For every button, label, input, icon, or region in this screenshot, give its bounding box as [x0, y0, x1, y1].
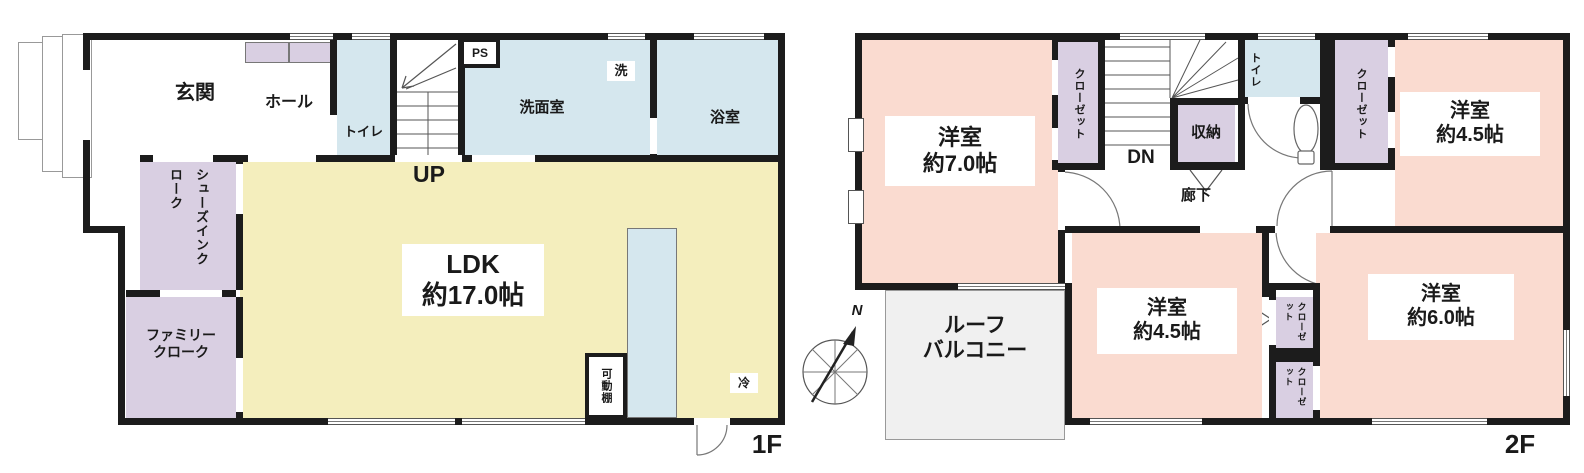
compass-needle-head-icon: [843, 326, 856, 346]
washer-label: 洗: [607, 61, 635, 81]
room45b-label-line1: 洋室: [1147, 297, 1187, 321]
wall-segment-30: [1238, 33, 1245, 170]
wall-segment-9: [390, 40, 397, 158]
north-label: N: [842, 300, 872, 322]
door-opening-9: [236, 358, 243, 412]
door-opening-14: [1058, 172, 1065, 230]
genkan-label: 玄関: [148, 80, 242, 108]
room6-label-line2: 約6.0帖: [1407, 307, 1475, 331]
kitchen-counter: [627, 228, 677, 418]
up-label: UP: [396, 160, 462, 190]
door-opening-1: [153, 155, 213, 162]
dn-label: DN: [1118, 144, 1164, 172]
family-closet-label-line1: ファミリー: [146, 327, 216, 344]
door-opening-20: [1269, 300, 1276, 345]
window-6: [462, 418, 585, 425]
door-opening-6: [472, 155, 535, 162]
room7-label: 洋室約7.0帖: [885, 116, 1035, 186]
closet-small-1-label: クローゼット: [1278, 302, 1311, 344]
window-box-left-1: [848, 118, 864, 152]
ldk-label-line1: LDK: [446, 249, 499, 280]
hallway-label: 廊下: [1164, 183, 1228, 209]
closet-right-label: クローゼット: [1348, 58, 1374, 150]
door-opening-3: [650, 118, 657, 154]
window-2: [352, 33, 390, 40]
balcony-label-line1: ルーフ: [944, 314, 1006, 339]
balcony-label: ルーフバルコニー: [898, 310, 1052, 368]
window-7: [1120, 33, 1205, 40]
room45b-label: 洋室約4.5帖: [1097, 288, 1237, 354]
room7-label-line1: 洋室: [938, 125, 982, 151]
washbasin-2f-base-icon: [1298, 151, 1314, 164]
window-10: [958, 283, 1065, 290]
balcony-label-line2: バルコニー: [923, 339, 1028, 364]
washroom-label: 洗面室: [494, 96, 590, 120]
toilet-1f-label: トイレ: [337, 123, 390, 141]
room45a-door-arc: [1277, 171, 1332, 226]
room45a-label-line1: 洋室: [1450, 100, 1490, 124]
door-opening-8: [160, 290, 222, 297]
room7-label-line2: 約7.0帖: [923, 151, 998, 177]
hall-label: ホール: [248, 92, 330, 114]
washbasin-2f-icon: [1294, 105, 1318, 153]
window-9: [1408, 33, 1488, 40]
wall-segment-21: [1065, 283, 1072, 425]
compass-spokes-icon: [803, 340, 867, 404]
door-opening-2: [330, 115, 337, 155]
window-4: [694, 33, 764, 40]
wall-segment-37: [1330, 226, 1570, 233]
door-opening-17: [1388, 112, 1395, 148]
hall-cabinet-a: [245, 42, 289, 63]
window-12: [1372, 418, 1487, 425]
wall-segment-42: [1269, 348, 1320, 362]
room6-label-line1: 洋室: [1421, 283, 1461, 307]
closet-left-label: クローゼット: [1066, 58, 1092, 150]
room7-door-arc: [1062, 172, 1120, 230]
door-opening-10: [83, 70, 90, 140]
shoes-closet-label: シューズインクローク: [160, 168, 216, 274]
room-genkan-strip: [125, 155, 140, 290]
wall-segment-39: [1266, 283, 1320, 290]
wall-segment-29: [1170, 162, 1242, 170]
door-opening-15: [1248, 97, 1300, 104]
door-opening-7: [236, 164, 243, 214]
door-opening-19: [1275, 226, 1330, 233]
stairs-1f-up-arrow: [402, 44, 456, 89]
closet-small-2-label: クローゼット: [1278, 367, 1311, 409]
window-11: [1090, 418, 1202, 425]
wall-segment-32: [1320, 33, 1335, 170]
bathroom-label: 浴室: [693, 106, 757, 130]
wall-segment-1: [83, 33, 778, 40]
window-5: [328, 418, 455, 425]
stairs-2f-treads: [1105, 47, 1170, 145]
ldk-label-line2: 約17.0帖: [422, 280, 525, 311]
family-closet-label-line2: クローク: [153, 344, 209, 361]
family-closet-label: ファミリークローク: [128, 322, 234, 366]
room-bathroom-floor: [657, 40, 778, 155]
movable-shelf-box: 可動棚: [585, 353, 627, 419]
movable-shelf-label: 可動棚: [589, 357, 623, 415]
door-opening-18: [1200, 226, 1256, 233]
wall-segment-35: [1065, 226, 1200, 233]
window-right-wall: [1563, 330, 1570, 396]
entrance-porch-step-1: [18, 42, 44, 140]
door-opening-21: [1313, 366, 1320, 410]
toilet-2f-label: トイレ: [1247, 45, 1263, 95]
window-box-left-2: [848, 190, 864, 224]
wall-segment-19: [855, 33, 862, 290]
door-opening-12: [1052, 60, 1058, 95]
room6-label: 洋室約6.0帖: [1368, 274, 1514, 340]
room45a-label: 洋室約4.5帖: [1400, 92, 1540, 156]
room45b-label-line2: 約4.5帖: [1133, 321, 1201, 345]
floorplan-canvas: PS 可動棚 玄関ホールトイレUP洗面室洗浴室冷1FDN収納廊下2FNLDK約1…: [0, 0, 1584, 473]
kitchen-backdoor-arc: [697, 425, 727, 455]
window-8: [1258, 33, 1315, 40]
window-1: [290, 33, 333, 40]
ps-label: PS: [464, 42, 496, 64]
room45a-label-line2: 約4.5帖: [1436, 124, 1504, 148]
ldk-label: LDK約17.0帖: [402, 244, 544, 316]
door-opening-4: [248, 155, 316, 162]
wall-segment-27: [1170, 98, 1242, 105]
storage-label: 収納: [1177, 120, 1235, 146]
stairs-2f-winder-fan: [1172, 40, 1238, 98]
ps-shaft-box: PS: [460, 38, 500, 68]
floor2-label: 2F: [1492, 427, 1548, 461]
hall-cabinet-b: [289, 42, 332, 63]
wall-segment-34: [1320, 163, 1395, 170]
fridge-label: 冷: [730, 373, 758, 393]
floor1-label: 1F: [740, 427, 794, 461]
wall-segment-2: [778, 33, 785, 425]
door-opening-16: [1388, 47, 1395, 77]
window-3: [608, 33, 645, 40]
wall-segment-6: [118, 226, 125, 425]
door-opening-11: [694, 418, 730, 425]
wall-segment-25: [1098, 35, 1105, 170]
door-opening-13: [1052, 128, 1058, 160]
